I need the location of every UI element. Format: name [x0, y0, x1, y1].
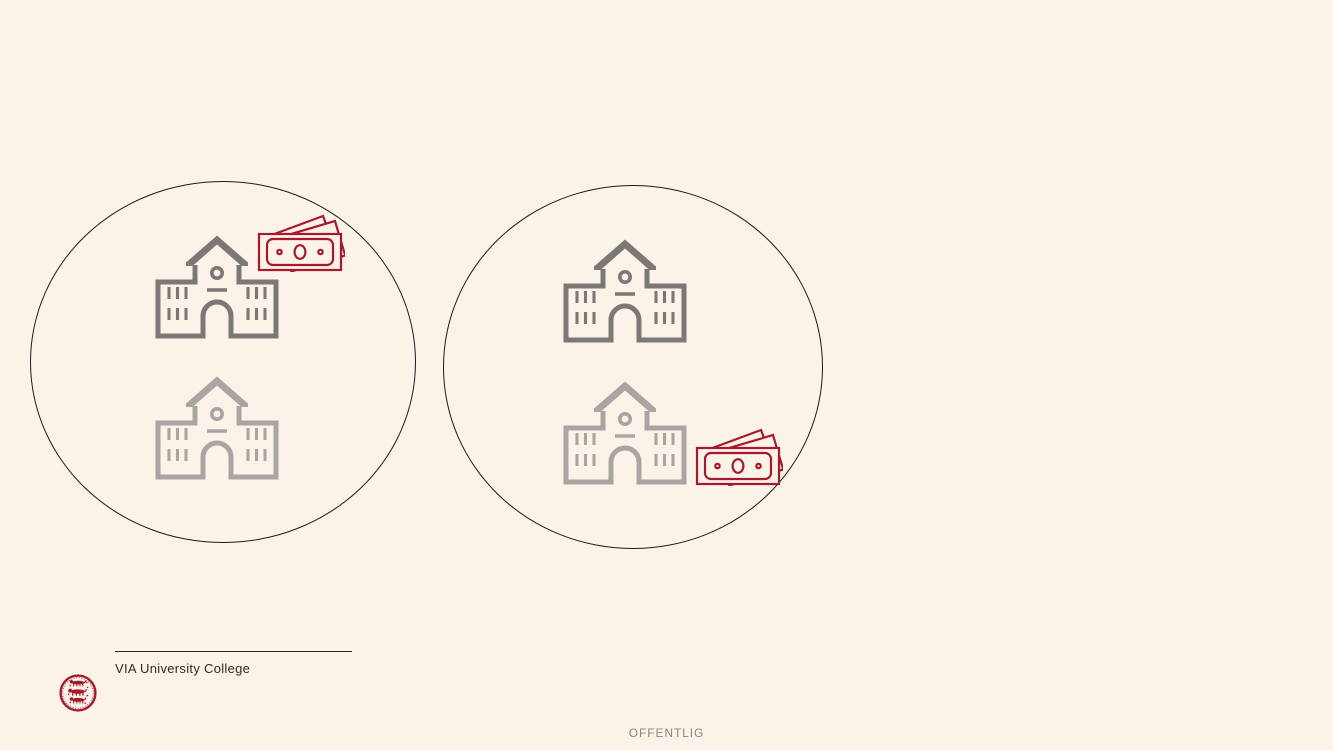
footer-divider: [115, 651, 352, 652]
classification-label: OFFENTLIG: [0, 726, 1333, 740]
org-name: VIA University College: [115, 661, 250, 676]
school-building-icon-right-top: [563, 236, 687, 344]
school-building-icon-left-bottom: [155, 373, 279, 481]
school-building-icon-left-top: [155, 232, 279, 340]
slide-canvas: VIA University College OFFENTLIG: [0, 0, 1333, 750]
banknotes-icon-right-group: [693, 420, 783, 486]
school-building-icon-right-bottom: [563, 378, 687, 486]
via-three-lions-seal-logo: [58, 673, 98, 713]
